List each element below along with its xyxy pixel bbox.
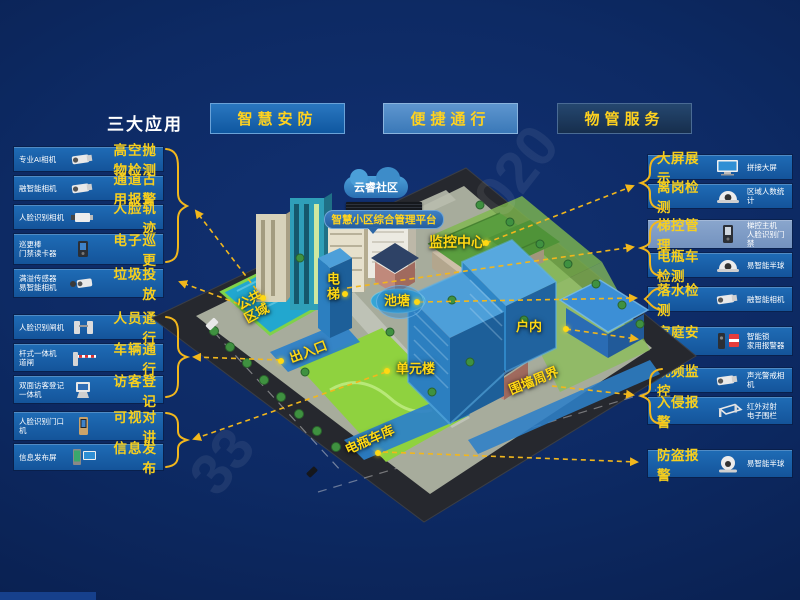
bottom-left-strip: [0, 592, 96, 600]
zone-label-elevator: 电梯: [324, 272, 339, 302]
anchor-dot-indoor: [563, 326, 569, 332]
zone-label-unit-building: 单元楼: [396, 362, 435, 377]
anchor-dot-monitor-center: [483, 240, 489, 246]
smart-community-dashboard: 三大应用 智慧安防 便捷通行 物管服务 专业AI相机 高空抛物检测 融智能相机 …: [0, 0, 800, 600]
cloud-platform-badge: 云睿社区: [344, 176, 408, 198]
zone-label-indoor: 户内: [516, 320, 542, 335]
anchor-dot-elevator: [342, 291, 348, 297]
anchor-dot-entrance: [278, 358, 284, 364]
anchor-dot-ebike-garage: [375, 450, 381, 456]
anchor-dot-unit-building: [384, 368, 390, 374]
zone-label-monitor-center: 监控中心: [429, 234, 485, 250]
anchor-dot-public-area: [260, 295, 266, 301]
zone-label-pond: 池塘: [384, 294, 410, 309]
anchor-dot-pond: [414, 299, 420, 305]
cloud-label: 云睿社区: [354, 179, 398, 195]
platform-banner: 智慧小区综合管理平台: [324, 210, 444, 229]
